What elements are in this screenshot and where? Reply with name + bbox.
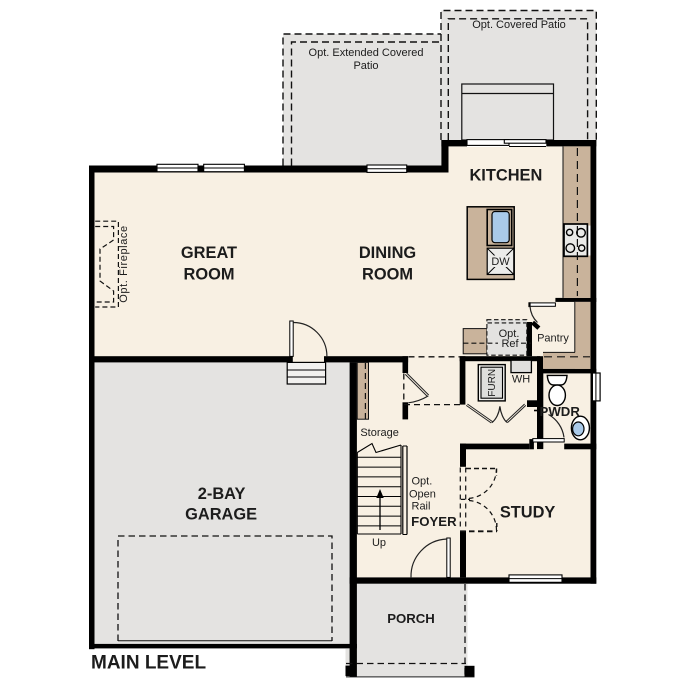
svg-text:Opt. Covered Patio: Opt. Covered Patio xyxy=(472,19,566,31)
svg-text:Opt. Extended Covered: Opt. Extended Covered xyxy=(309,47,424,59)
svg-text:Rail: Rail xyxy=(412,501,431,513)
svg-text:WH: WH xyxy=(512,374,530,386)
svg-text:Opt.: Opt. xyxy=(412,476,433,488)
svg-text:DW: DW xyxy=(491,256,510,268)
svg-text:Open: Open xyxy=(409,489,436,501)
svg-text:GREAT: GREAT xyxy=(181,244,237,262)
svg-text:PORCH: PORCH xyxy=(387,611,435,626)
svg-text:Patio: Patio xyxy=(353,60,378,72)
svg-text:Ref: Ref xyxy=(501,338,519,350)
svg-text:FOYER: FOYER xyxy=(411,514,457,529)
svg-text:2-BAY: 2-BAY xyxy=(198,485,246,503)
svg-text:DINING: DINING xyxy=(359,244,416,262)
svg-text:FURN: FURN xyxy=(487,369,498,397)
svg-text:ROOM: ROOM xyxy=(362,266,413,284)
svg-text:KITCHEN: KITCHEN xyxy=(469,167,542,185)
svg-text:Up: Up xyxy=(372,537,386,549)
svg-text:ROOM: ROOM xyxy=(184,266,235,284)
svg-text:Opt. Fireplace: Opt. Fireplace xyxy=(118,225,130,302)
svg-text:STUDY: STUDY xyxy=(500,504,556,522)
svg-text:Pantry: Pantry xyxy=(537,333,569,345)
svg-text:MAIN LEVEL: MAIN LEVEL xyxy=(91,653,206,674)
svg-text:GARAGE: GARAGE xyxy=(185,505,257,523)
svg-text:PWDR: PWDR xyxy=(540,404,581,419)
svg-text:Storage: Storage xyxy=(360,427,399,439)
